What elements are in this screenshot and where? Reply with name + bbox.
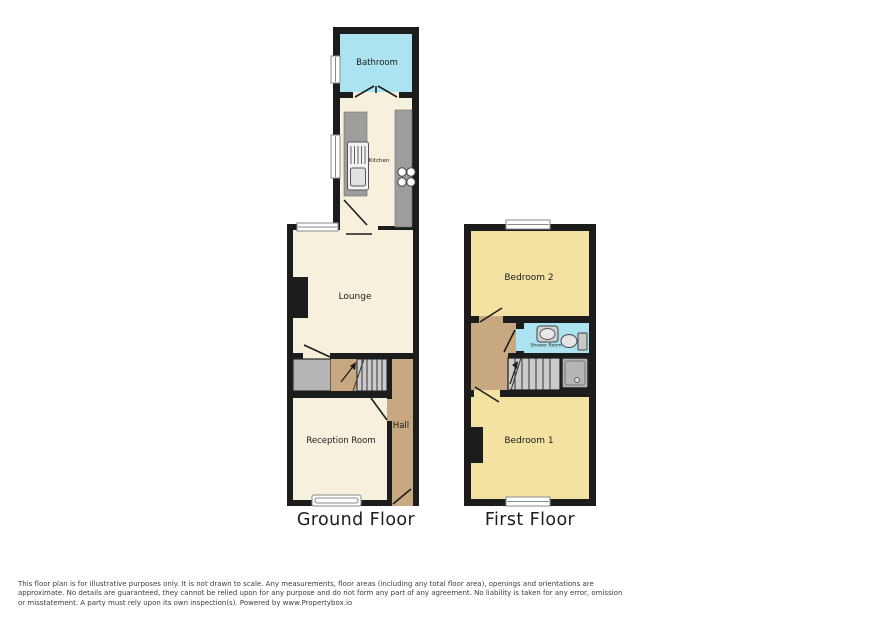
gf-hall-partition-wall xyxy=(387,359,392,500)
floorplan-page: Bathroom Kitchen Lounge Reception Room H… xyxy=(0,0,886,620)
bedroom1-chimney-breast xyxy=(464,427,483,463)
kitchen-lounge-opening xyxy=(340,221,378,232)
bedroom1-door-opening xyxy=(474,390,500,397)
hob-ring xyxy=(398,168,406,176)
lounge-chimney-breast xyxy=(287,277,308,318)
gf-cupboard xyxy=(293,359,331,391)
hob-ring xyxy=(407,168,415,176)
first-floor-plan xyxy=(464,220,596,506)
kitchen-label: Kitchen xyxy=(369,158,390,164)
bedroom1-floor xyxy=(471,397,589,499)
toilet-bowl xyxy=(561,335,577,348)
bedroom1-label: Bedroom 1 xyxy=(504,436,553,446)
reception-floor xyxy=(293,398,387,500)
ground-floor-plan xyxy=(287,27,419,506)
reception-window xyxy=(312,495,361,506)
reception-door-opening xyxy=(387,399,392,421)
lounge-label: Lounge xyxy=(338,292,371,302)
toilet-cistern xyxy=(578,333,587,350)
gf-reception-top-wall xyxy=(293,391,387,398)
bathroom-label: Bathroom xyxy=(356,58,398,68)
reception-label: Reception Room xyxy=(306,436,375,446)
hob-ring xyxy=(407,178,415,186)
disclaimer-text: This floor plan is for illustrative purp… xyxy=(18,580,630,608)
shower-drain xyxy=(575,378,580,383)
sink-basin xyxy=(351,168,366,186)
shower-room-label: Shower Room xyxy=(530,344,561,349)
shower-room-door-opening xyxy=(516,329,524,351)
shower-room-bottom-wall xyxy=(508,353,589,358)
hob-ring xyxy=(398,178,406,186)
shower-tray xyxy=(562,358,588,388)
first-floor-title: First Floor xyxy=(420,510,640,530)
hall-label: Hall xyxy=(393,421,409,431)
bedroom2-label: Bedroom 2 xyxy=(504,273,553,283)
basin-bowl xyxy=(540,329,555,340)
landing-floor-lower xyxy=(471,358,508,390)
